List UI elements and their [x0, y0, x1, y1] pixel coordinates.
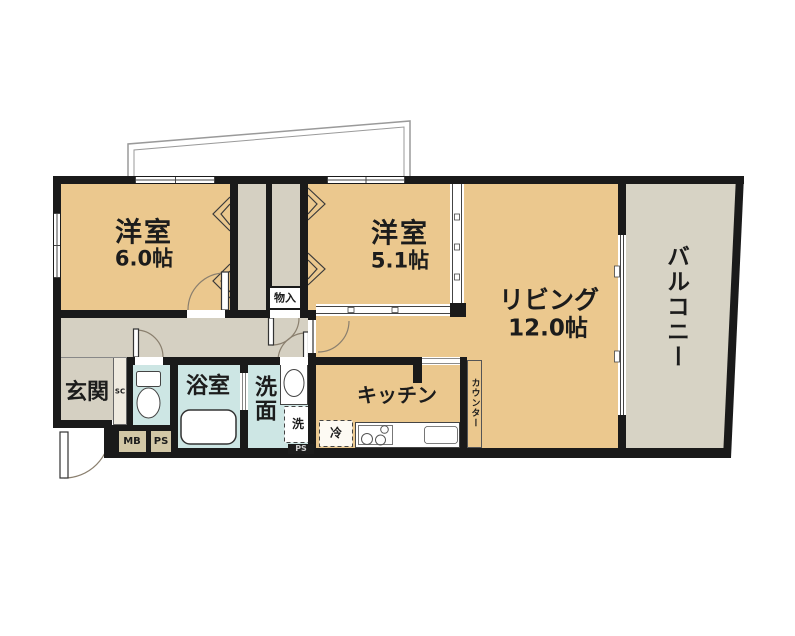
- kitchen-label: キッチン: [357, 385, 437, 405]
- pipe-shaft-label-2: PS: [295, 445, 307, 453]
- storage-label: 物入: [274, 293, 296, 304]
- living-area: 12.0帖: [508, 318, 588, 341]
- bedroom1-area: 6.0帖: [115, 249, 173, 270]
- wall-segment: [308, 353, 316, 448]
- refrigerator-label: 冷: [330, 427, 342, 439]
- wall-top: [53, 176, 744, 184]
- toilet-floor: [133, 365, 170, 425]
- wall-kitchen-stub: [413, 357, 422, 383]
- eaves-outline-inner: [134, 127, 404, 176]
- bedroom1-label: 洋室: [115, 220, 173, 247]
- bedroom2-label: 洋室: [371, 221, 429, 248]
- toilet-doorway: [135, 357, 163, 365]
- balcony-label: バルコニー: [664, 245, 687, 370]
- wall-segment: [127, 357, 133, 432]
- wall-left: [53, 176, 61, 428]
- wall-segment: [240, 357, 248, 448]
- wall-segment: [230, 184, 238, 318]
- counter-label: カウンター: [470, 378, 479, 428]
- bedroom2-area: 5.1帖: [371, 251, 429, 272]
- bathroom-label: 浴室: [186, 376, 230, 398]
- shoe-cabinet-label: SC: [115, 389, 125, 396]
- washroom-label: 洗面: [252, 375, 274, 423]
- eaves-outline-outer: [128, 121, 410, 176]
- bedroom1-doorway: [187, 310, 225, 318]
- living-label: リビング: [499, 288, 599, 313]
- entrance-label: 玄関: [65, 382, 109, 404]
- meter-box-label: MB: [123, 437, 141, 447]
- wall-rooms-bottom: [61, 310, 187, 318]
- wall-partition-corner: [450, 303, 466, 317]
- pipe-shaft-label: PS: [154, 437, 169, 447]
- wall-living-balcony: [618, 176, 626, 458]
- wall-segment: [308, 310, 316, 320]
- wall-rooms-bottom: [225, 310, 270, 318]
- wall-segment: [163, 357, 280, 365]
- storage-doorway: [270, 310, 300, 318]
- wall-counter: [460, 357, 467, 448]
- wall-kitchen-top: [316, 357, 422, 365]
- wall-bottom: [104, 448, 728, 458]
- bedroom1-closet-floor: [238, 184, 266, 310]
- balcony-outer-wall: [723, 176, 744, 458]
- entrance-door-leaf: [60, 432, 68, 478]
- corridor-floor: [61, 318, 308, 357]
- washing-machine-label: 洗: [292, 418, 304, 430]
- washroom-doorway: [280, 357, 308, 365]
- floor-plan: 洋室 6.0帖 洋室 5.1帖 リビング 12.0帖 バルコニー 玄関 SC 浴…: [0, 0, 795, 636]
